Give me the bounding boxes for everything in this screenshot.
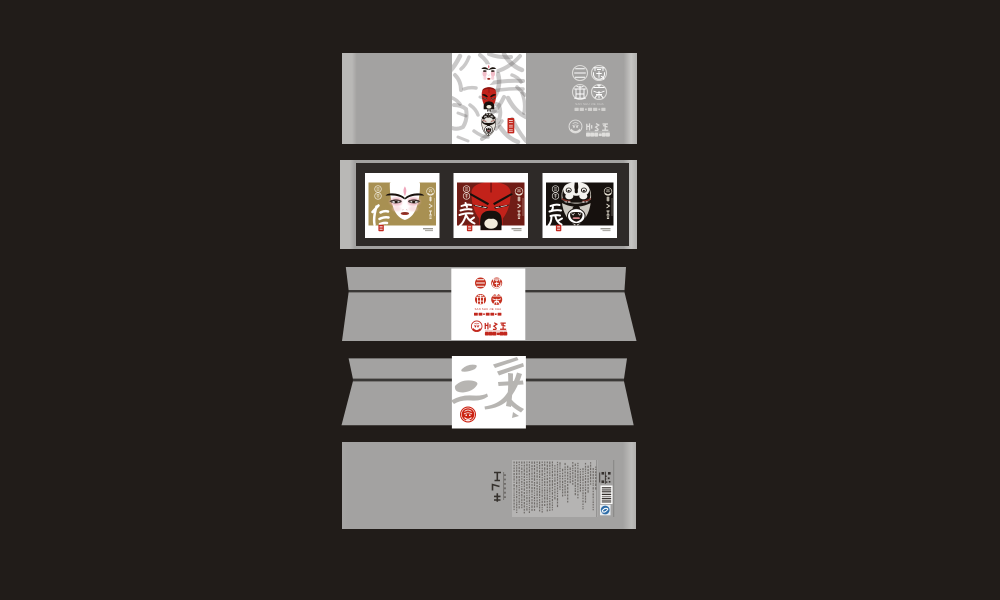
svg-text:SAN SHU JIE CHA: SAN SHU JIE CHA <box>575 102 604 106</box>
svg-text:SAN SHU JIE CHA: SAN SHU JIE CHA <box>475 307 502 311</box>
